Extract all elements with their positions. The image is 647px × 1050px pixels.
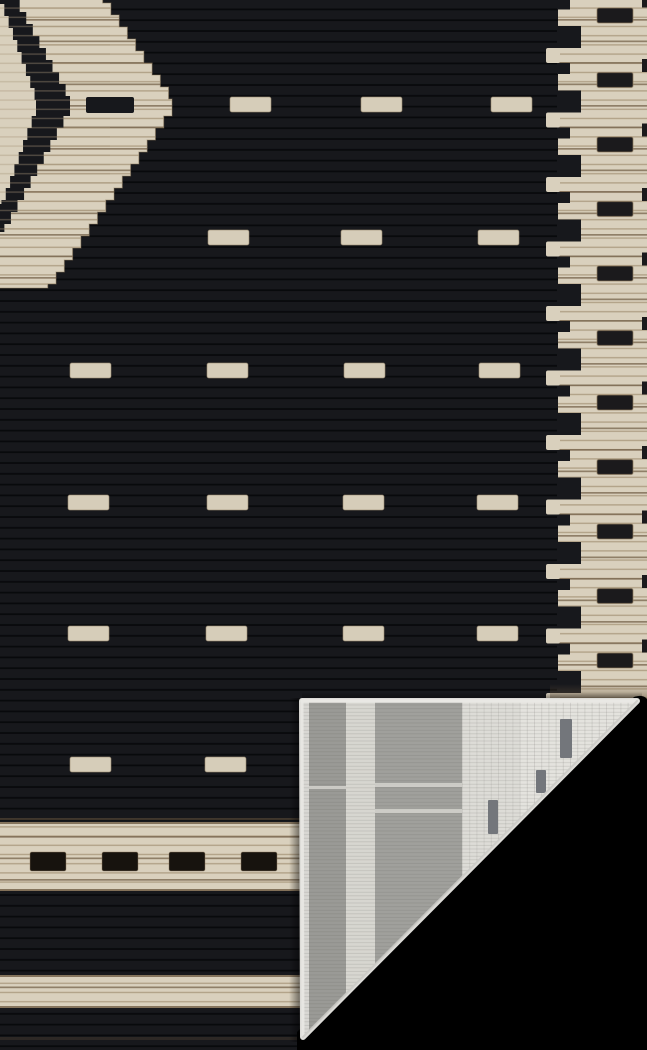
- right-border-band: [546, 0, 647, 719]
- field-dash: [343, 626, 384, 641]
- field-dash: [361, 97, 402, 112]
- backing-dash: [488, 800, 498, 834]
- field-dash: [70, 757, 111, 772]
- field-dash: [208, 230, 249, 245]
- field-dash: [230, 97, 271, 112]
- rug-photo-canvas: [0, 0, 647, 1050]
- field-dash: [344, 363, 385, 378]
- backing-dash: [536, 770, 546, 793]
- field-dash: [477, 626, 518, 641]
- field-dash: [207, 495, 248, 510]
- field-dash: [68, 626, 109, 641]
- field-dash: [491, 97, 532, 112]
- field-dash: [68, 495, 109, 510]
- border-dash: [241, 852, 277, 871]
- field-dash: [206, 626, 247, 641]
- border-dash: [30, 852, 66, 871]
- field-dash: [479, 363, 520, 378]
- field-dash: [477, 495, 518, 510]
- border-dash: [102, 852, 138, 871]
- field-dash: [343, 495, 384, 510]
- field-dash: [205, 757, 246, 772]
- backing-dash: [560, 719, 572, 758]
- field-dash: [70, 363, 111, 378]
- field-dash: [207, 363, 248, 378]
- field-dash: [478, 230, 519, 245]
- field-dash: [341, 230, 382, 245]
- rug-product-photo: [0, 0, 647, 1050]
- border-dash: [169, 852, 205, 871]
